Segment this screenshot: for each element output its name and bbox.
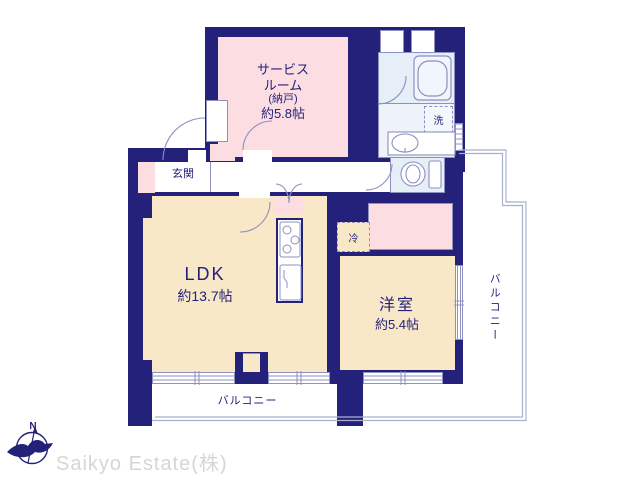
- south-protrusion-inner: [243, 353, 260, 372]
- balcony-east-label: バルコニー: [487, 272, 500, 344]
- western-room-label: 洋室 約5.4帖: [344, 296, 450, 333]
- ldk-doorway-box: [273, 197, 303, 213]
- logo-text-value: Saikyo Estate(株): [56, 453, 228, 475]
- ldk-label: LDK 約13.7帖: [150, 264, 260, 304]
- western-room-label-text: 洋室: [344, 296, 450, 315]
- balcony-east-label-text: バルコニー: [488, 273, 500, 343]
- floor-plan: 洗 冷 サービス ルーム (納戸) 約5.8帖 玄関 LDK 約13.7帖 洋室…: [0, 0, 640, 480]
- washer-space: 洗: [424, 106, 453, 133]
- niche-pink-box: [210, 144, 235, 161]
- washer-label: 洗: [434, 112, 444, 127]
- service-room-name-1: サービス: [228, 62, 338, 78]
- service-room-size: 約5.8帖: [228, 106, 338, 122]
- wall-pillar-center: [337, 384, 363, 426]
- service-room-name-2: ルーム: [228, 78, 338, 94]
- balcony-south-label-text: バルコニー: [218, 395, 278, 407]
- service-door-gap: [243, 150, 272, 164]
- entrance-label-text: 玄関: [172, 168, 194, 180]
- logo-text: Saikyo Estate(株): [56, 447, 228, 476]
- refrigerator-space: 冷: [337, 222, 370, 252]
- powder-window: [455, 123, 463, 151]
- refrigerator-label: 冷: [349, 230, 359, 245]
- service-room-name-3: (納戸): [228, 93, 338, 106]
- balcony-south-label: バルコニー: [195, 395, 300, 408]
- western-room-closet: [368, 203, 453, 250]
- ldk-corner-step-bottom: [143, 360, 152, 372]
- entrance-label: 玄関: [158, 168, 208, 181]
- ldk-label-text: LDK: [150, 264, 260, 286]
- compass-n-label: N: [26, 421, 40, 433]
- western-balcony-window: [455, 265, 463, 340]
- ldk-door-gap: [239, 191, 270, 198]
- entrance-side-closet: [138, 162, 155, 193]
- bathroom-window-right: [411, 30, 435, 53]
- compass-n-text: N: [29, 421, 36, 432]
- wall-pillar-left: [128, 384, 152, 426]
- western-window-south: [363, 372, 443, 384]
- room-bathroom: [378, 52, 455, 104]
- entrance-door-gap: [188, 150, 206, 162]
- western-room-size-text: 約5.4帖: [344, 317, 450, 333]
- service-room-label: サービス ルーム (納戸) 約5.8帖: [228, 62, 338, 122]
- ldk-window-left: [152, 372, 235, 384]
- ldk-size-text: 約13.7帖: [150, 288, 260, 305]
- closet-niche: [206, 100, 228, 142]
- bathroom-window-left: [380, 30, 404, 53]
- kitchen-counter: [276, 218, 303, 303]
- entrance-step-line: [210, 162, 211, 192]
- ldk-window-right: [268, 372, 330, 384]
- ldk-corner-step-top: [143, 196, 152, 218]
- room-toilet: [390, 157, 445, 193]
